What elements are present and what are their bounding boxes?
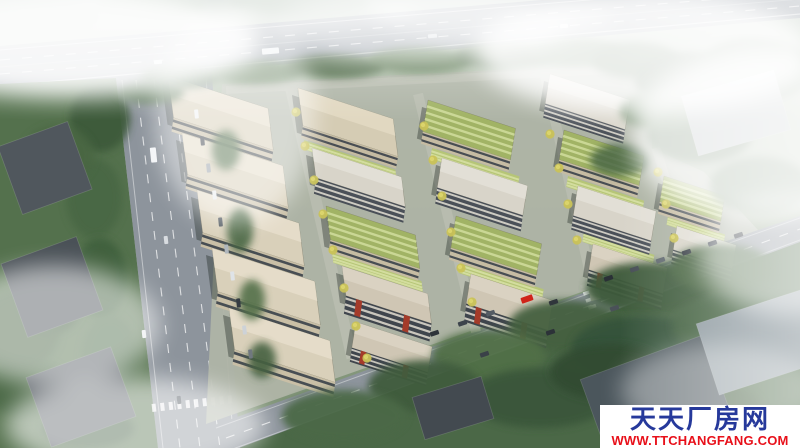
yellow-tree-highlight [469, 299, 473, 303]
yellow-tree-highlight [458, 265, 462, 269]
yellow-tree-highlight [341, 285, 345, 289]
yellow-tree-highlight [448, 229, 452, 233]
watermark-site-name: 天天厂房网 [630, 406, 770, 432]
yellow-tree-highlight [320, 211, 324, 215]
yellow-tree-highlight [364, 355, 368, 359]
yellow-tree-highlight [439, 193, 443, 197]
watermark-site-url: WWW.TTCHANGFANG.COM [611, 434, 788, 447]
aerial-render-image: 天天厂房网 WWW.TTCHANGFANG.COM [0, 0, 800, 448]
yellow-tree-highlight [565, 201, 569, 205]
yellow-tree-highlight [353, 323, 357, 327]
tree-cluster [248, 342, 276, 378]
yellow-tree-highlight [574, 237, 578, 241]
yellow-tree-highlight [547, 131, 551, 135]
tree-cluster [282, 390, 406, 442]
yellow-tree-highlight [311, 177, 315, 181]
industrial-park-rendering [0, 0, 800, 448]
car [164, 236, 169, 244]
yellow-tree-highlight [556, 165, 560, 169]
yellow-tree-highlight [330, 247, 334, 251]
yellow-tree-highlight [430, 157, 434, 161]
tree-cluster [239, 280, 265, 320]
yellow-tree-highlight [421, 123, 425, 127]
watermark: 天天厂房网 WWW.TTCHANGFANG.COM [600, 405, 800, 448]
